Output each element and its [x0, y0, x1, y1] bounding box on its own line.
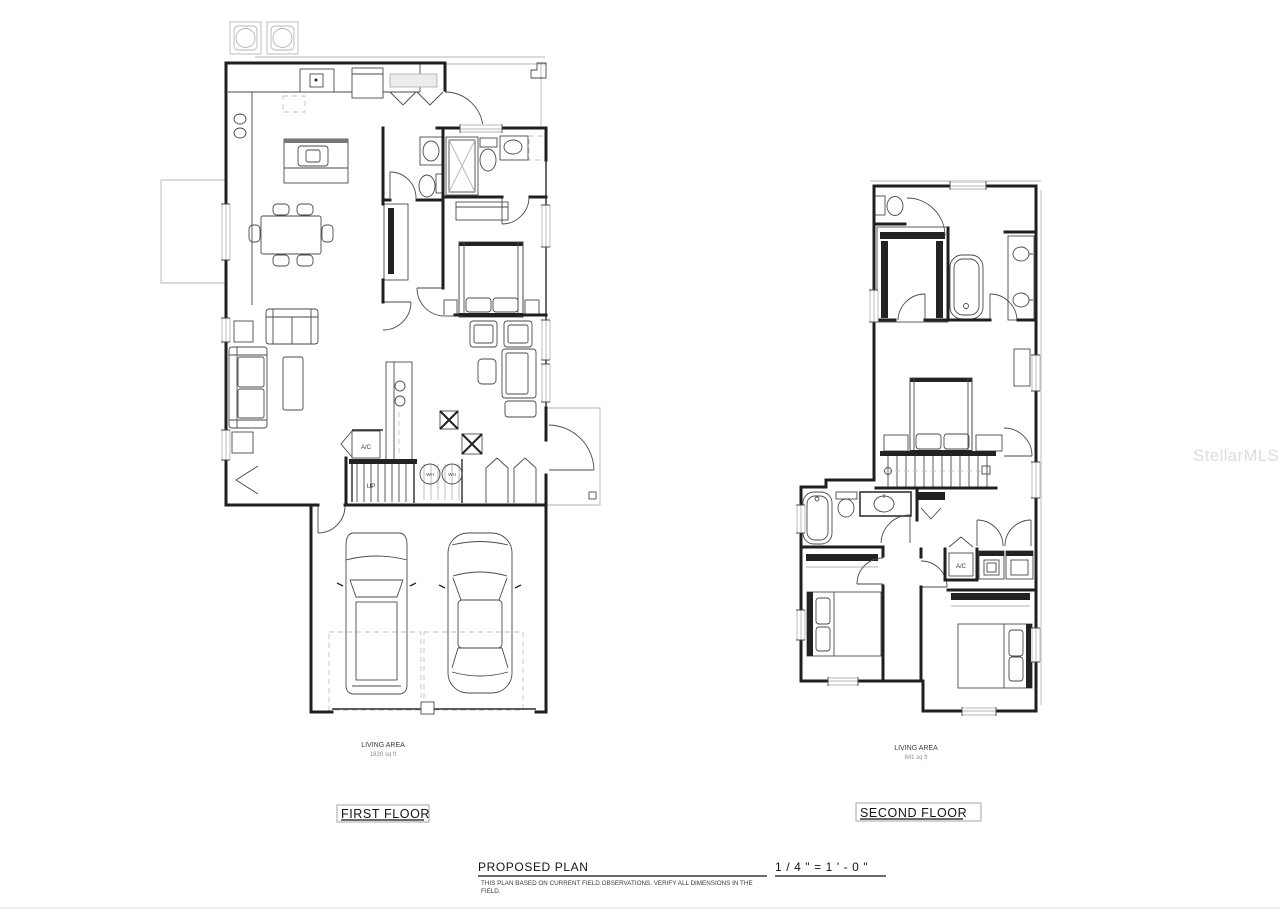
pillow	[1009, 630, 1023, 656]
master-door-swing	[1004, 428, 1032, 456]
side-table	[234, 321, 253, 342]
plan-note-line2: FIELD.	[481, 888, 501, 895]
second-floor-living-area-value: 841 sq ft	[904, 755, 927, 761]
watermark: StellarMLS	[1193, 447, 1279, 465]
pillow	[916, 434, 941, 449]
dresser	[1014, 349, 1030, 386]
closet-rod	[388, 208, 394, 274]
refrigerator	[352, 68, 383, 98]
upper-bath	[875, 196, 1034, 320]
linen-closet	[918, 492, 945, 519]
stairs-first-floor: A/C UP WH WH	[318, 431, 536, 533]
entry-door-swing	[549, 425, 594, 470]
ottoman	[505, 401, 536, 417]
porch-door-swing	[445, 92, 483, 128]
stair-railing	[880, 451, 996, 456]
side-table	[232, 432, 253, 453]
title-block: PROPOSED PLAN 1 / 4 " = 1 ' - 0 " THIS P…	[478, 860, 886, 895]
bedroom-2	[806, 554, 883, 656]
dining-table	[261, 216, 321, 254]
second-floor-plan: A/C	[796, 181, 1041, 821]
dining-area	[249, 204, 333, 266]
parking-stall	[424, 632, 523, 710]
toilet	[887, 197, 903, 216]
armchair	[502, 349, 536, 398]
dining-chair	[249, 225, 260, 242]
lower-bath	[803, 492, 911, 544]
second-floor-living-area-label: LIVING AREA	[894, 745, 938, 752]
garage	[329, 533, 523, 710]
closet	[384, 204, 408, 280]
nightstand	[976, 435, 1002, 451]
plan-note-line1: THIS PLAN BASED ON CURRENT FIELD OBSERVA…	[481, 880, 753, 887]
first-floor-living-area-value: 1839 sq ft	[370, 752, 397, 758]
main-bath	[446, 136, 545, 224]
second-floor-overhang	[870, 181, 1041, 705]
sofa	[229, 347, 267, 428]
pillow	[816, 627, 830, 651]
dining-chair	[297, 204, 313, 215]
dining-chair	[273, 204, 289, 215]
kitchen	[228, 63, 483, 305]
porch-column	[531, 63, 546, 78]
toilet	[838, 499, 854, 517]
side-table	[478, 359, 496, 384]
dining-chair	[322, 225, 333, 242]
pillow	[816, 598, 830, 624]
first-floor-plan: A/C UP WH WH	[161, 22, 600, 822]
ac-label-second: A/C	[956, 564, 967, 570]
wh-label: WH	[448, 472, 456, 477]
car	[439, 533, 521, 693]
first-floor-label: FIRST FLOOR	[341, 807, 430, 821]
closet-rod	[806, 554, 878, 561]
dining-chair	[273, 255, 289, 266]
entry-closet-shelf	[390, 74, 437, 87]
closet-door	[486, 458, 508, 503]
second-floor-walls	[801, 186, 1036, 711]
plan-sheet: A/C UP WH WH	[0, 0, 1280, 914]
nightstand	[884, 435, 908, 451]
walk-in-closet	[877, 227, 948, 322]
garage-entry-door	[318, 506, 345, 533]
dining-chair	[297, 255, 313, 266]
butler-pantry	[386, 362, 412, 462]
first-floor-living-area-label: LIVING AREA	[361, 742, 405, 749]
first-floor-title: FIRST FLOOR	[337, 805, 430, 822]
closet-door	[514, 458, 536, 503]
living-room	[229, 309, 318, 494]
up-label: UP	[366, 483, 375, 490]
sink	[874, 496, 894, 512]
ac-closet-second-floor: A/C	[949, 537, 973, 576]
bifold-doors	[390, 92, 443, 105]
first-floor-windows	[221, 124, 550, 460]
truck	[337, 533, 416, 694]
laundry-closet	[977, 520, 1033, 579]
floor-plan-drawing: A/C UP WH WH	[0, 0, 1280, 914]
appliance-symbols	[230, 22, 298, 54]
pillow	[466, 298, 491, 312]
ac-label: A/C	[361, 445, 372, 451]
plan-title: PROPOSED PLAN	[478, 860, 589, 874]
side-door	[236, 466, 258, 494]
plan-scale: 1 / 4 " = 1 ' - 0 "	[775, 860, 868, 874]
sink	[423, 141, 439, 161]
toilet	[480, 149, 496, 171]
closet-rod	[951, 593, 1030, 600]
coffee-table	[283, 357, 303, 410]
second-floor-label: SECOND FLOOR	[860, 806, 967, 820]
sink	[1013, 293, 1029, 307]
dresser	[456, 202, 508, 220]
kitchen-sink	[234, 114, 246, 124]
sitting-area	[440, 321, 536, 454]
wh-label: WH	[426, 472, 434, 477]
pillow	[493, 298, 518, 312]
stairs-second-floor	[880, 451, 996, 487]
sink	[1013, 247, 1029, 261]
master-bedroom	[884, 349, 1032, 456]
pillow	[1009, 657, 1023, 681]
toilet	[419, 175, 435, 197]
bedroom-1	[383, 202, 539, 330]
pillow	[944, 434, 969, 449]
second-floor-title: SECOND FLOOR	[856, 803, 981, 821]
powder-room	[390, 137, 443, 198]
vanity	[860, 492, 911, 516]
